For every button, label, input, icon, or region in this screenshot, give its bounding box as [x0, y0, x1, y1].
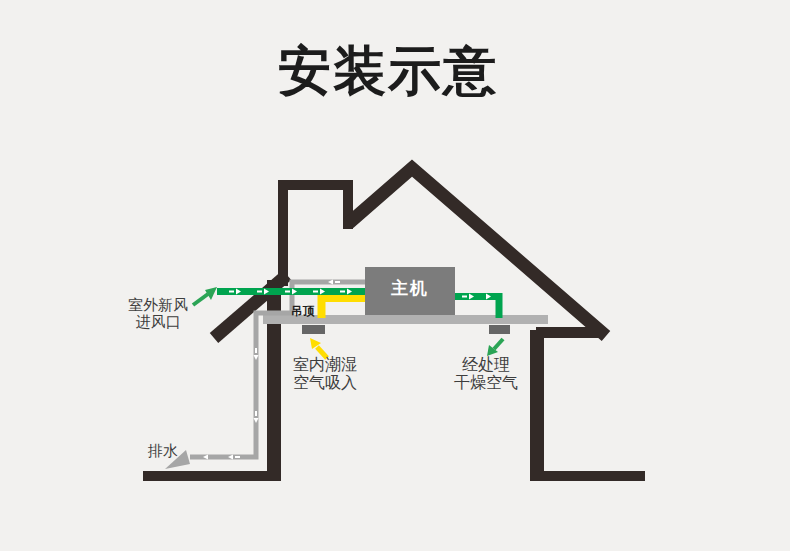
label-treated-dry-air: 经处理 干燥空气	[445, 356, 527, 392]
vent-outlet	[489, 325, 510, 334]
label-ceiling: 吊顶	[291, 305, 315, 317]
label-indoor-humid-air: 室内潮湿 空气吸入	[284, 356, 366, 392]
label-main-unit: 主机	[365, 279, 455, 298]
vent-intake	[302, 325, 325, 334]
label-outdoor-fresh-air-line1: 室外新风	[114, 297, 202, 314]
label-outdoor-fresh-air-line2: 进风口	[114, 314, 202, 331]
label-treated-dry-air-line2: 干燥空气	[445, 374, 527, 392]
label-indoor-humid-air-line1: 室内潮湿	[284, 356, 366, 374]
label-outdoor-fresh-air: 室外新风 进风口	[114, 297, 202, 331]
page-title: 安装示意	[0, 42, 776, 100]
label-treated-dry-air-line1: 经处理	[445, 356, 527, 374]
label-drain: 排水	[148, 443, 178, 460]
installation-diagram-page: 安装示意 室外新风 进风口 吊顶 主机 室内潮湿 空气吸入 经处理 干燥空气 排…	[0, 0, 790, 551]
label-indoor-humid-air-line2: 空气吸入	[284, 374, 366, 392]
